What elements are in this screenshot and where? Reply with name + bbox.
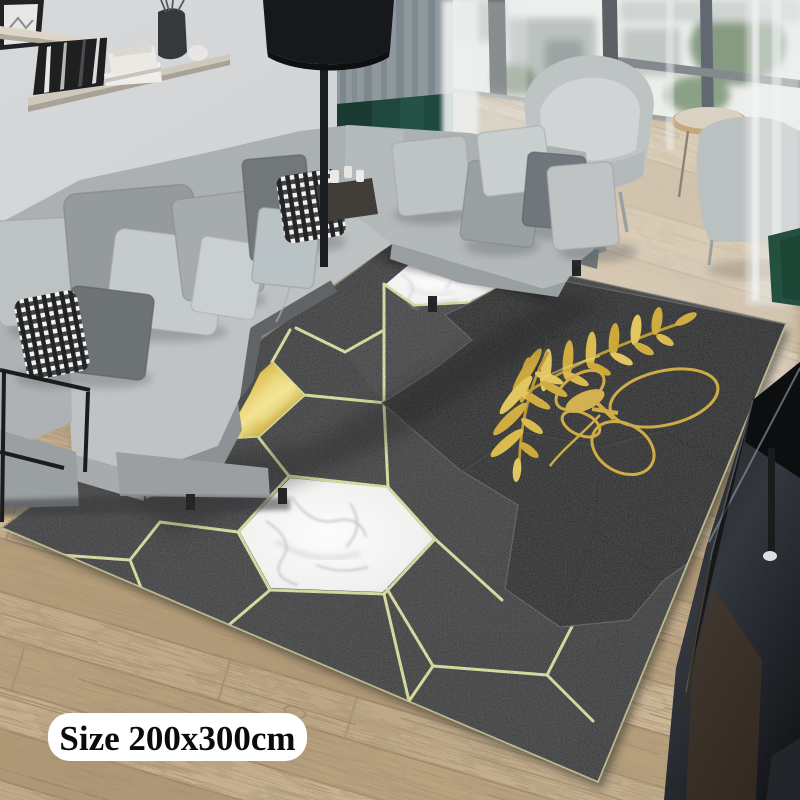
svg-text:Size 200x300cm: Size 200x300cm	[59, 719, 295, 758]
